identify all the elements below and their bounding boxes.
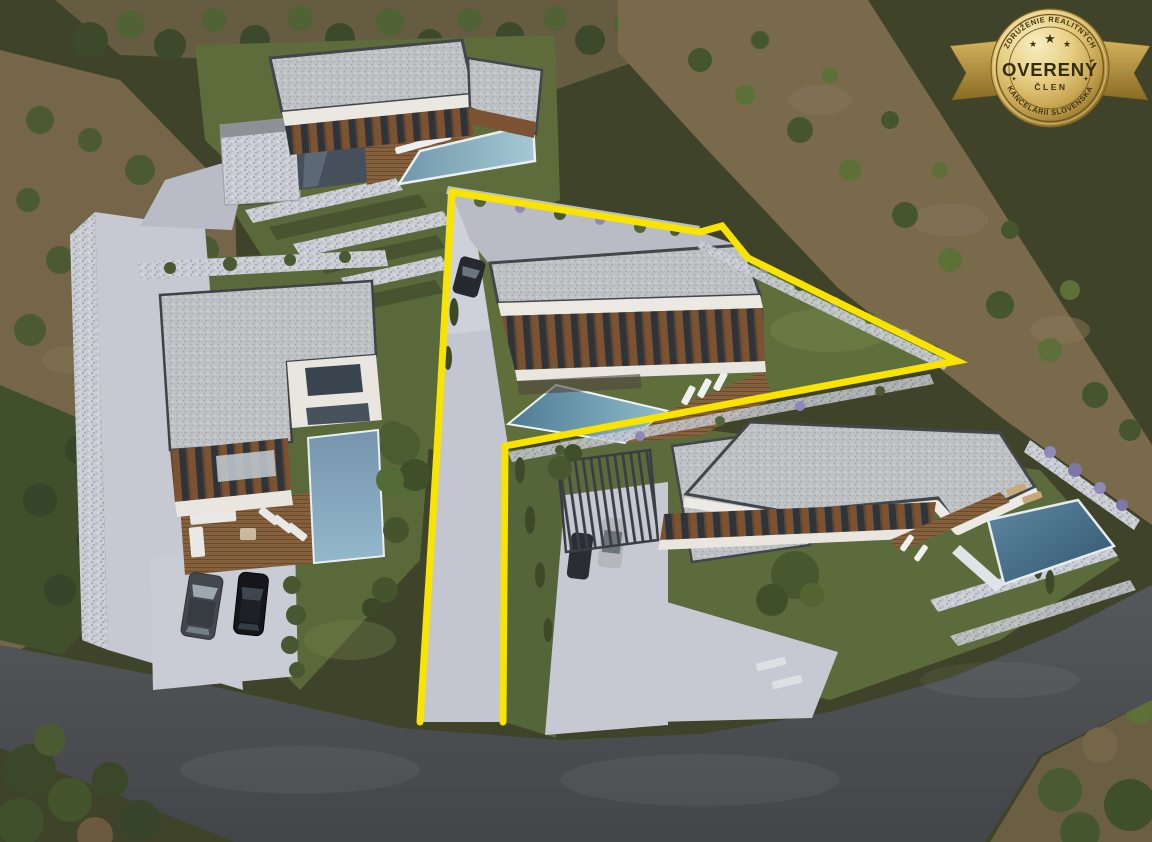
- badge-star-right: ★: [1063, 39, 1071, 49]
- badge-star-left: ★: [1029, 39, 1037, 49]
- render-canvas: ZDRUŽENIE REALITNÝCH KANCELÁRIÍ SLOVENSK…: [0, 0, 1152, 842]
- badge-member-text: ČLEN: [1034, 81, 1067, 92]
- badge-side-mark-left: ✦: [1011, 76, 1017, 83]
- aerial-property-render: ZDRUŽENIE REALITNÝCH KANCELÁRIÍ SLOVENSK…: [0, 0, 1152, 842]
- badge-star-center: ★: [1044, 31, 1056, 46]
- carport-pergola: [558, 450, 658, 552]
- villa-3-window-band: [501, 308, 765, 370]
- villa-2-pool: [308, 430, 384, 563]
- badge-side-mark-right: ✦: [1083, 76, 1089, 83]
- parked-sedan: [233, 572, 269, 637]
